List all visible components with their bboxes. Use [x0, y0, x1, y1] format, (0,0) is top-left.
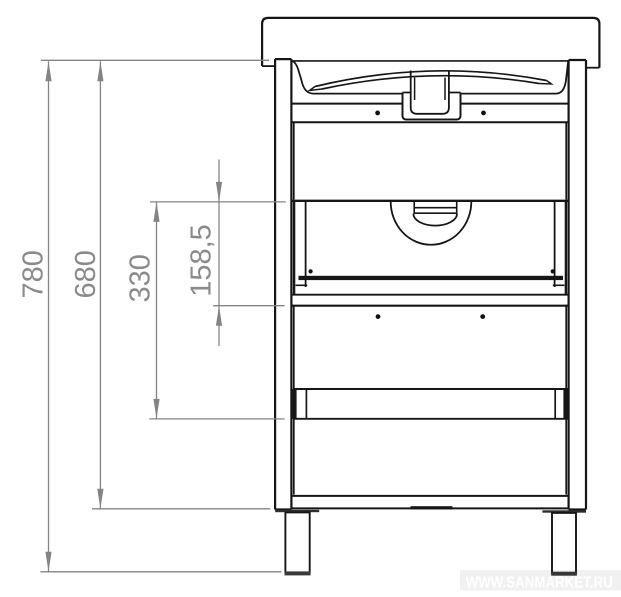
svg-text:330: 330: [125, 254, 157, 302]
svg-text:780: 780: [18, 250, 50, 298]
svg-text:158,5: 158,5: [186, 224, 218, 297]
svg-text:680: 680: [70, 250, 102, 298]
svg-text:WWW.SANMARKET.RU: WWW.SANMARKET.RU: [466, 575, 613, 592]
